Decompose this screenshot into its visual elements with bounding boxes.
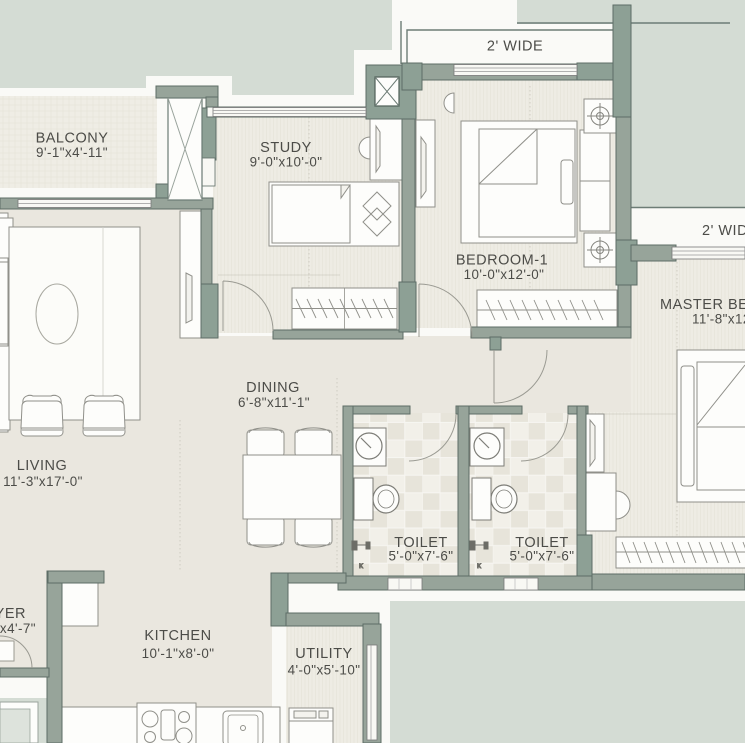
svg-text:FOYER: FOYER	[0, 606, 26, 622]
svg-text:5'-0"x7'-6": 5'-0"x7'-6"	[510, 549, 575, 564]
svg-text:LIVING: LIVING	[17, 458, 68, 474]
svg-text:10'-0"x12'-0": 10'-0"x12'-0"	[464, 267, 545, 282]
svg-text:UTILITY: UTILITY	[295, 646, 352, 662]
svg-text:5'-0"x7'-6": 5'-0"x7'-6"	[389, 549, 454, 564]
svg-text:9'-0"x10'-0": 9'-0"x10'-0"	[250, 155, 323, 170]
svg-text:11'-3"x17'-0": 11'-3"x17'-0"	[3, 474, 83, 489]
svg-text:2' WIDE: 2' WIDE	[487, 39, 543, 55]
svg-text:DINING: DINING	[246, 380, 300, 396]
svg-text:4'-0"x5'-10": 4'-0"x5'-10"	[288, 663, 361, 678]
svg-text:2' WIDE: 2' WIDE	[702, 223, 745, 239]
svg-text:KITCHEN: KITCHEN	[144, 628, 211, 644]
svg-text:6'-8"x11'-1": 6'-8"x11'-1"	[238, 395, 310, 410]
svg-text:10'-1"x8'-0": 10'-1"x8'-0"	[142, 646, 215, 661]
svg-text:11'-8"x12'-0": 11'-8"x12'-0"	[692, 312, 745, 327]
svg-text:9'-1"x4'-11": 9'-1"x4'-11"	[36, 145, 108, 160]
svg-text:3'-6"x4'-7": 3'-6"x4'-7"	[0, 621, 36, 636]
